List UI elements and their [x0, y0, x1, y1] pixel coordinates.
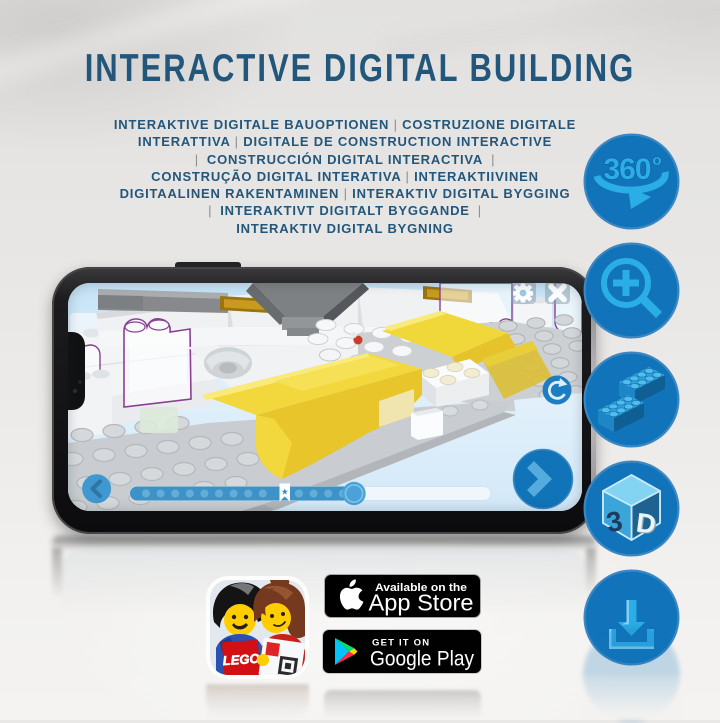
svg-text:LEGO: LEGO — [222, 651, 260, 669]
svg-text:o: o — [652, 152, 661, 169]
svg-text:App Store: App Store — [369, 590, 474, 616]
svg-text:360: 360 — [603, 153, 650, 186]
svg-text:Google Play: Google Play — [370, 647, 474, 671]
svg-text:D: D — [635, 507, 658, 539]
